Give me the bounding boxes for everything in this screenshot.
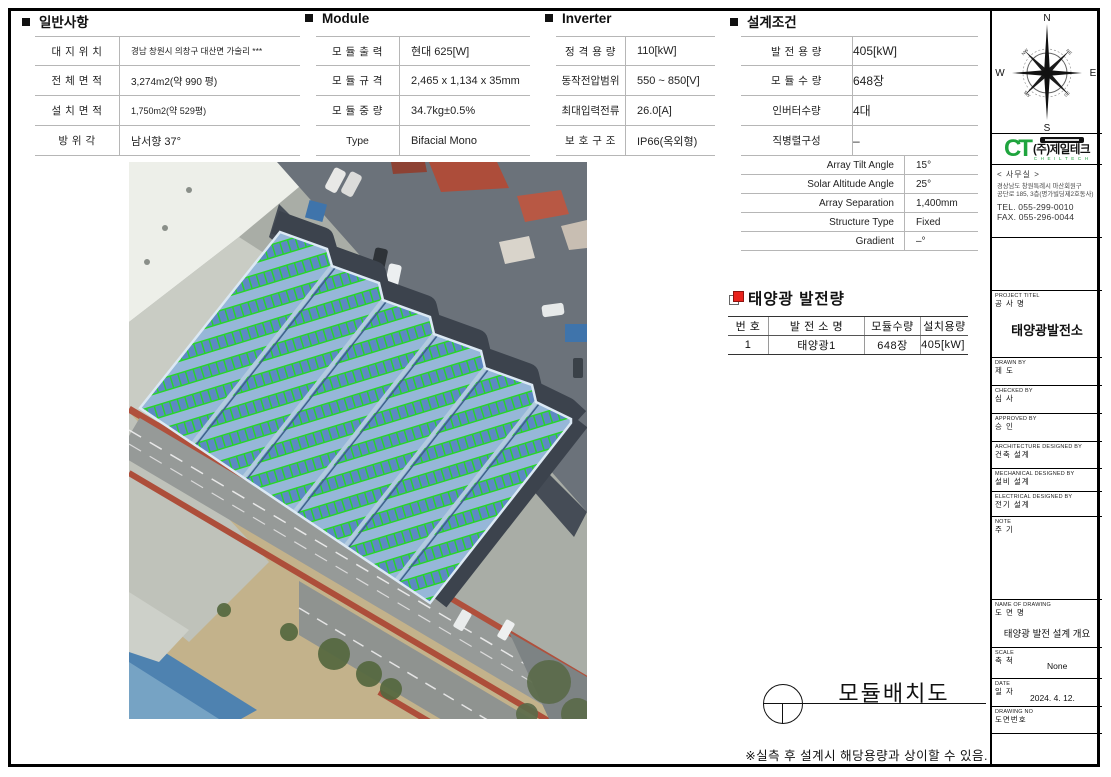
aerial-map-graphic [129, 162, 587, 719]
row-label: Structure Type [741, 213, 905, 231]
generation-data-row: 1 태양광1 648장 405[kW] [728, 336, 968, 354]
office-tel: TEL. 055-299-0010 [997, 202, 1097, 212]
field-architecture: ARCHITECTURE DESIGNED BY 건축 설계 [992, 441, 1102, 468]
generation-header-row: 번 호 발 전 소 명 모듈수량 설치용량 [728, 317, 968, 336]
office-fax: FAX. 055-296-0044 [997, 212, 1097, 222]
compass-e-label: E [1090, 68, 1097, 79]
table-row: Structure TypeFixed [741, 213, 978, 232]
square-bullet-icon [545, 14, 553, 22]
aerial-map [129, 162, 587, 719]
table-row: 발 전 용 량405[kW] [741, 36, 978, 66]
inverter-table: 정 격 용 량110[kW] 동작전압범위550 ~ 850[V] 최대입력전류… [556, 36, 715, 156]
row-value: 15° [905, 156, 931, 174]
col-header: 설치용량 [920, 317, 968, 335]
field-label-ko: 전기 설계 [995, 500, 1099, 509]
project-title-value: 태양광발전소 [995, 320, 1099, 339]
square-bullet-icon [305, 14, 313, 22]
field-note: NOTE 주 기 [992, 516, 1102, 599]
titleblock-spacer [992, 733, 1102, 763]
row-label: 모 듈 출 력 [316, 37, 400, 65]
cell-module-count: 648장 [864, 336, 920, 354]
row-label: 대 지 위 치 [35, 37, 120, 65]
compass-s-label: S [1044, 123, 1051, 133]
table-row: 최대입력전류26.0[A] [556, 96, 715, 126]
generation-table: 번 호 발 전 소 명 모듈수량 설치용량 1 태양광1 648장 405[kW… [728, 316, 968, 355]
row-value: 3,274m2(약 990 평) [120, 66, 217, 95]
date-value: 2024. 4. 12. [1030, 693, 1075, 703]
row-value: Fixed [905, 213, 940, 231]
drawing-callout-title: 모듈배치도 [798, 676, 990, 708]
svg-text:SW: SW [1023, 90, 1032, 99]
row-value: IP66(옥외형) [626, 126, 697, 155]
office-address-line2: 공단로 185, 3층(명가빌딩제2호동사) [997, 191, 1097, 199]
field-label-ko: 설비 설계 [995, 477, 1099, 486]
row-value: 25° [905, 175, 931, 193]
table-row: 인버터수량4대 [741, 96, 978, 126]
row-label: Array Tilt Angle [741, 156, 905, 174]
drawing-name-value: 태양광 발전 설계 개요 [995, 626, 1099, 640]
scale-value: None [1047, 661, 1067, 671]
field-project-title: PROJECT TITEL 공 사 명 태양광발전소 [992, 290, 1102, 357]
compass-w-label: W [995, 68, 1005, 79]
cell-no: 1 [728, 336, 768, 354]
field-drawn-by: DRAWN BY 제 도 [992, 357, 1102, 385]
field-label-ko: 공 사 명 [995, 299, 1099, 308]
office-address-line1: 경상남도 창원특례시 마산회원구 [997, 183, 1097, 191]
row-label: Array Separation [741, 194, 905, 212]
row-value: 남서향 37° [120, 126, 181, 155]
company-logo: CT (주)제일테크 C H E I L T E C H [992, 133, 1102, 165]
company-name: (주)제일테크 [1033, 144, 1090, 156]
col-header: 발 전 소 명 [768, 317, 864, 335]
field-label-ko: 승 인 [995, 422, 1099, 431]
field-approved-by: APPROVED BY 승 인 [992, 413, 1102, 441]
red-roof [429, 162, 509, 192]
table-row: Solar Altitude Angle25° [741, 175, 978, 194]
office-heading: < 사무실 > [997, 169, 1097, 180]
table-row: 모 듈 중 량34.7kg±0.5% [316, 96, 530, 126]
general-table: 대 지 위 치경남 창원시 의창구 대산면 가술리 *** 전 체 면 적3,2… [35, 36, 300, 156]
company-name-en: C H E I L T E C H [1034, 156, 1090, 161]
row-value: Bifacial Mono [400, 126, 477, 155]
row-value: 2,465 x 1,134 x 35mm [400, 66, 520, 95]
row-value: 1,400mm [905, 194, 958, 212]
square-bullet-icon [730, 18, 738, 26]
row-label: 최대입력전류 [556, 96, 626, 125]
row-value: 405[kW] [853, 37, 897, 65]
row-value: 648장 [853, 66, 884, 95]
row-value: 26.0[A] [626, 96, 672, 125]
row-label: 설 치 면 적 [35, 96, 120, 125]
table-row: 방 위 각남서향 37° [35, 126, 300, 156]
row-label: Solar Altitude Angle [741, 175, 905, 193]
compass-rose-icon: N S W E NW NE SW SE [992, 11, 1102, 133]
row-label: 모 듈 중 량 [316, 96, 400, 125]
field-scale: SCALE 축 척 None [992, 647, 1102, 678]
row-value: 현대 625[W] [400, 37, 469, 65]
drawing-sheet: 일반사항 대 지 위 치경남 창원시 의창구 대산면 가술리 *** 전 체 면… [0, 0, 1111, 777]
svg-text:SE: SE [1063, 90, 1071, 98]
row-label: 방 위 각 [35, 126, 120, 155]
row-value: –° [905, 232, 926, 250]
table-row: 전 체 면 적3,274m2(약 990 평) [35, 66, 300, 96]
row-label: 전 체 면 적 [35, 66, 120, 95]
table-row: 모 듈 수 량648장 [741, 66, 978, 96]
module-table: 모 듈 출 력현대 625[W] 모 듈 규 격2,465 x 1,134 x … [316, 36, 530, 156]
title-block: N S W E NW NE SW SE CT (주)제일테크 C H E I L… [990, 11, 1102, 766]
field-checked-by: CHECKED BY 심 사 [992, 385, 1102, 413]
module-section-title: Module [305, 11, 369, 26]
design-table: 발 전 용 량405[kW] 모 듈 수 량648장 인버터수량4대 직병렬구성… [741, 36, 978, 251]
table-row: 직병렬구성– [741, 126, 978, 156]
table-row: Array Tilt Angle15° [741, 156, 978, 175]
square-bullet-icon [22, 18, 30, 26]
table-row: 대 지 위 치경남 창원시 의창구 대산면 가술리 *** [35, 36, 300, 66]
row-value: 34.7kg±0.5% [400, 96, 475, 125]
cell-capacity: 405[kW] [920, 336, 968, 354]
compass-n-label: N [1043, 13, 1050, 24]
field-label-ko: 주 기 [995, 525, 1099, 534]
field-mechanical: MECHANICAL DESIGNED BY 설비 설계 [992, 468, 1102, 491]
field-electrical: ELECTRICAL DESIGNED BY 전기 설계 [992, 491, 1102, 516]
table-row: 모 듈 출 력현대 625[W] [316, 36, 530, 66]
row-value: 1,750m2(약 529평) [120, 96, 206, 125]
table-row: 보 호 구 조IP66(옥외형) [556, 126, 715, 156]
office-info: < 사무실 > 경상남도 창원특례시 마산회원구 공단로 185, 3층(명가빌… [992, 165, 1102, 237]
field-drawing-name: NAME OF DRAWING 도 면 명 태양광 발전 설계 개요 [992, 599, 1102, 647]
field-label-ko: 제 도 [995, 366, 1099, 375]
row-label: 인버터수량 [741, 96, 853, 125]
logo-mark: CT [1004, 138, 1030, 160]
row-label: 직병렬구성 [741, 126, 853, 155]
generation-section-title: 태양광 발전량 [748, 287, 845, 309]
col-header: 번 호 [728, 317, 768, 335]
red-stack-icon [729, 291, 745, 307]
logo-badge-icon [1040, 137, 1084, 143]
footnote: ※실측 후 설계시 해당용량과 상이할 수 있음. [690, 745, 988, 764]
table-row: TypeBifacial Mono [316, 126, 530, 156]
field-label-ko: 도 면 명 [995, 608, 1099, 617]
inverter-section-title: Inverter [545, 11, 612, 26]
table-row: 모 듈 규 격2,465 x 1,134 x 35mm [316, 66, 530, 96]
row-label: Type [316, 126, 400, 155]
row-value: 경남 창원시 의창구 대산면 가술리 *** [120, 37, 262, 65]
titleblock-spacer [992, 237, 1102, 290]
general-section-title: 일반사항 [22, 11, 89, 31]
row-value: 4대 [853, 96, 871, 125]
cell-plant-name: 태양광1 [768, 336, 864, 354]
row-value: – [853, 126, 860, 155]
row-value: 550 ~ 850[V] [626, 66, 700, 95]
row-label: 정 격 용 량 [556, 37, 626, 65]
table-row: Gradient–° [741, 232, 978, 251]
field-date: DATE 일 자 2024. 4. 12. [992, 678, 1102, 706]
design-section-title: 설계조건 [730, 11, 797, 31]
table-row: 설 치 면 적1,750m2(약 529평) [35, 96, 300, 126]
field-label-ko: 심 사 [995, 394, 1099, 403]
field-drawing-no: DRAWING NO 도면번호 [992, 706, 1102, 733]
svg-text:NE: NE [1065, 48, 1073, 56]
row-label: 모 듈 규 격 [316, 66, 400, 95]
table-row: 동작전압범위550 ~ 850[V] [556, 66, 715, 96]
row-label: 모 듈 수 량 [741, 66, 853, 95]
table-row: Array Separation1,400mm [741, 194, 978, 213]
field-label-ko: 건축 설계 [995, 450, 1099, 459]
row-value: 110[kW] [626, 37, 677, 65]
callout-divider [782, 704, 783, 724]
col-header: 모듈수량 [864, 317, 920, 335]
row-label: 발 전 용 량 [741, 37, 853, 65]
table-row: 정 격 용 량110[kW] [556, 36, 715, 66]
row-label: 동작전압범위 [556, 66, 626, 95]
row-label: Gradient [741, 232, 905, 250]
row-label: 보 호 구 조 [556, 126, 626, 155]
field-label-ko: 도면번호 [995, 715, 1099, 724]
